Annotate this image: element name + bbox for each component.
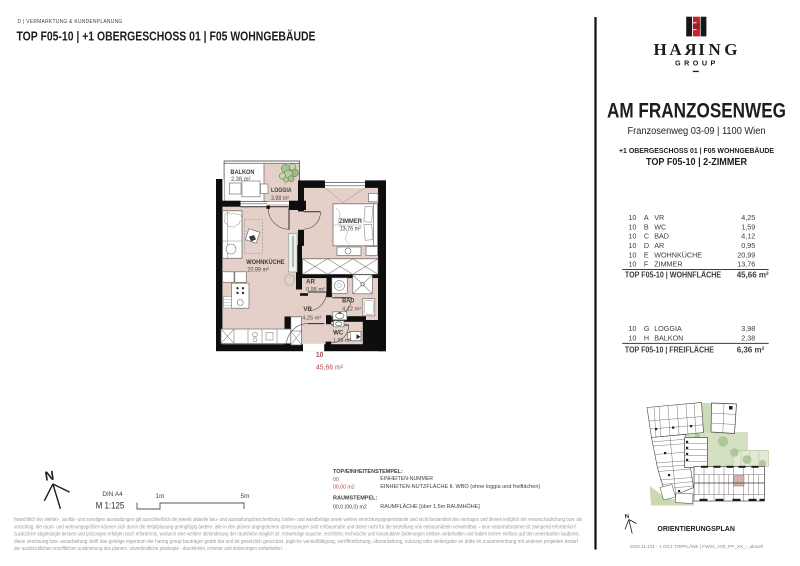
svg-text:1m: 1m <box>156 493 165 500</box>
svg-text:EINHEITEN-NUMMER: EINHEITEN-NUMMER <box>380 476 433 482</box>
svg-text:10: 10 <box>628 213 636 222</box>
svg-text:10: 10 <box>628 260 636 269</box>
svg-text:5m: 5m <box>241 493 250 500</box>
svg-text:G: G <box>644 324 650 333</box>
svg-text:4,12: 4,12 <box>741 232 755 241</box>
svg-text:TOP F05-10 | 2-ZIMMER: TOP F05-10 | 2-ZIMMER <box>646 157 747 168</box>
svg-text:3,98: 3,98 <box>741 324 755 333</box>
svg-text:10: 10 <box>628 333 636 342</box>
svg-text:D | VERMARKTUNG & KUNDENPLANUN: D | VERMARKTUNG & KUNDENPLANUNG <box>18 19 123 25</box>
svg-text:45,66 m²: 45,66 m² <box>316 363 344 372</box>
svg-text:BALKON: BALKON <box>230 169 254 176</box>
svg-text:4,25: 4,25 <box>741 213 755 222</box>
svg-text:WC: WC <box>654 222 666 231</box>
svg-text:Franzosenweg 03-09 | 1100 Wien: Franzosenweg 03-09 | 1100 Wien <box>628 126 766 137</box>
svg-text:0,95 m²: 0,95 m² <box>306 287 325 293</box>
svg-text:RAUMFLÄCHE [über 1,5m RAUMHÖHE: RAUMFLÄCHE [über 1,5m RAUMHÖHE] <box>380 503 480 510</box>
svg-text:AM FRANZOSENWEG: AM FRANZOSENWEG <box>607 99 786 123</box>
svg-text:der ausdrücklichen schriftlich: der ausdrücklichen schriftlichen zustimm… <box>14 546 283 552</box>
svg-text:20,99: 20,99 <box>737 250 755 259</box>
svg-text:2,38: 2,38 <box>741 333 755 342</box>
svg-text:N: N <box>44 468 55 484</box>
svg-text:4,12 m²: 4,12 m² <box>342 307 361 313</box>
svg-text:13,76 m²: 13,76 m² <box>340 227 361 233</box>
svg-text:10: 10 <box>628 324 636 333</box>
svg-text:H: H <box>644 333 649 342</box>
svg-text:WOHNKÜCHE: WOHNKÜCHE <box>246 257 285 266</box>
svg-text:2,38 m²: 2,38 m² <box>231 177 250 183</box>
svg-text:A: A <box>669 40 682 59</box>
svg-text:10: 10 <box>628 241 636 250</box>
svg-text:VR: VR <box>654 213 664 222</box>
svg-text:D: D <box>644 241 649 250</box>
svg-text:TOP/EINHEITENSTEMPEL:: TOP/EINHEITENSTEMPEL: <box>333 469 403 475</box>
svg-text:zusätzliche abgehängte decken: zusätzliche abgehängte decken und pölzun… <box>14 532 580 538</box>
svg-text:TOP F05-10 | +1 OBERGESCHOSS 0: TOP F05-10 | +1 OBERGESCHOSS 01 | F05 WO… <box>17 29 316 44</box>
svg-text:F: F <box>644 260 649 269</box>
svg-text:LOGGIA: LOGGIA <box>654 324 682 333</box>
svg-text:4,25 m²: 4,25 m² <box>302 315 321 321</box>
svg-text:M 1:125: M 1:125 <box>96 500 125 510</box>
svg-text:13,76: 13,76 <box>737 260 755 269</box>
svg-text:10: 10 <box>628 250 636 259</box>
svg-text:R: R <box>684 40 697 59</box>
svg-text:BALKON: BALKON <box>654 333 683 342</box>
svg-text:TOP F05-10 | FREIFLÄCHE: TOP F05-10 | FREIFLÄCHE <box>625 345 715 354</box>
svg-text:GROUP: GROUP <box>675 59 720 68</box>
svg-text:DIN A4: DIN A4 <box>102 491 123 498</box>
svg-text:AR: AR <box>306 278 315 285</box>
svg-text:E: E <box>644 250 649 259</box>
svg-text:20,99 m²: 20,99 m² <box>247 267 268 273</box>
svg-text:diese zeichnung bzw. ausarbeit: diese zeichnung bzw. ausarbeitung stellt… <box>14 539 579 545</box>
svg-text:hinsichtlich der elektro-, san: hinsichtlich der elektro-, sanitär- und … <box>14 517 582 523</box>
svg-text:TOP F05-10 | WOHNFLÄCHE: TOP F05-10 | WOHNFLÄCHE <box>625 271 722 280</box>
svg-text:10: 10 <box>628 222 636 231</box>
svg-text:C: C <box>644 232 649 241</box>
svg-text:ORIENTIERUNGSPLAN: ORIENTIERUNGSPLAN <box>657 524 735 533</box>
svg-text:EINHEITEN-NUTZFLÄCHE lt. WBO (: EINHEITEN-NUTZFLÄCHE lt. WBO (ohne loggi… <box>380 483 540 490</box>
svg-text:RAUMSTEMPEL:: RAUMSTEMPEL: <box>333 496 377 502</box>
svg-text:VR: VR <box>303 306 312 313</box>
svg-text:vorschlag. die raum- und wohnu: vorschlag. die raum- und wohnungsgrößen … <box>14 524 576 530</box>
svg-text:2025.11.131 - 1.OG1 TOPPLÄNE |: 2025.11.131 - 1.OG1 TOPPLÄNE | FW03_A00_… <box>630 543 764 550</box>
svg-text:00,00 m2: 00,00 m2 <box>333 484 355 490</box>
svg-text:ZIMMER: ZIMMER <box>654 260 682 269</box>
svg-text:10: 10 <box>628 232 636 241</box>
svg-text:10: 10 <box>316 350 324 359</box>
svg-text:WC: WC <box>333 329 344 336</box>
svg-text:45,66 m²: 45,66 m² <box>737 271 769 280</box>
svg-text:1,59 m²: 1,59 m² <box>333 338 351 344</box>
svg-text:G: G <box>724 40 737 59</box>
svg-text:BAD: BAD <box>342 297 355 304</box>
svg-text:WOHNKÜCHE: WOHNKÜCHE <box>654 250 702 259</box>
svg-text:N: N <box>709 40 722 59</box>
svg-text:0,95: 0,95 <box>741 241 755 250</box>
svg-text:6,36 m²: 6,36 m² <box>737 345 765 354</box>
svg-text:N: N <box>624 514 629 521</box>
svg-text:I: I <box>698 40 705 59</box>
svg-text:00,0 (00,0) m2: 00,0 (00,0) m2 <box>333 504 367 510</box>
svg-text:BAD: BAD <box>654 232 669 241</box>
svg-text:AR: AR <box>654 241 664 250</box>
svg-text:A: A <box>644 213 649 222</box>
svg-text:H: H <box>654 40 667 59</box>
svg-text:ZIMMER: ZIMMER <box>339 218 362 225</box>
svg-text:+1 OBERGESCHOSS 01 | F05 WOHNG: +1 OBERGESCHOSS 01 | F05 WOHNGEBÄUDE <box>619 147 774 155</box>
svg-text:3,98 m²: 3,98 m² <box>271 196 289 202</box>
svg-text:00: 00 <box>333 477 339 483</box>
svg-text:B: B <box>644 222 649 231</box>
svg-text:LOGGIA: LOGGIA <box>271 187 292 194</box>
svg-text:1,59: 1,59 <box>741 222 755 231</box>
